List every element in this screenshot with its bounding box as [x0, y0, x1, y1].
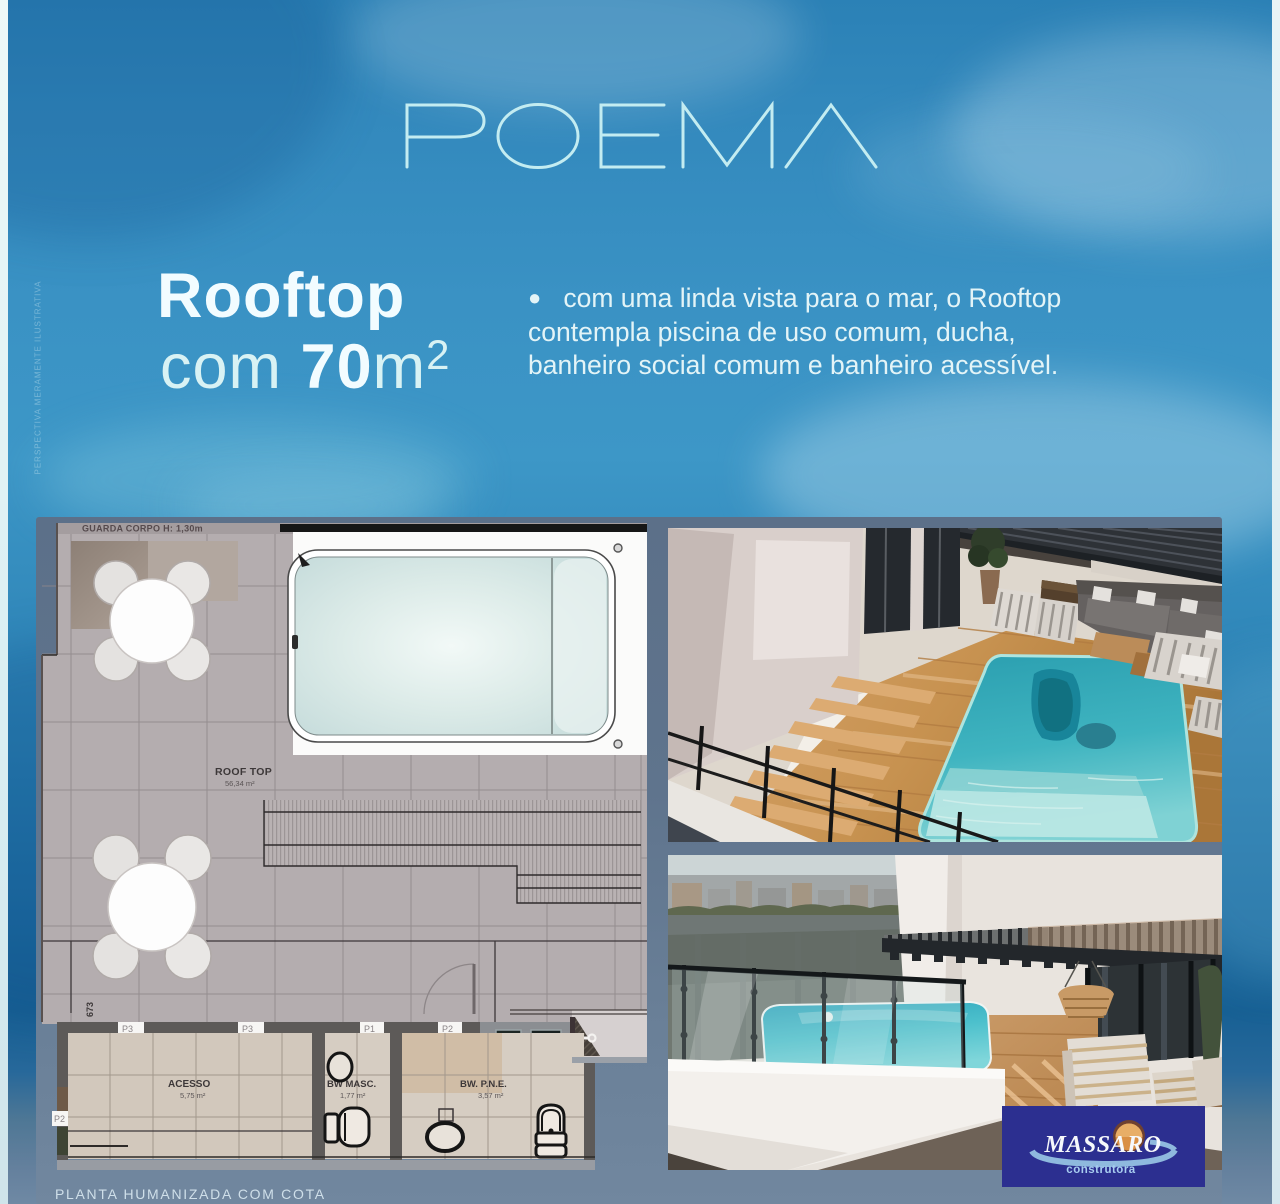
svg-text:1,77 m²: 1,77 m² — [340, 1091, 366, 1100]
svg-text:MASSARO: MASSARO — [1044, 1132, 1162, 1158]
svg-text:5,75 m²: 5,75 m² — [180, 1091, 206, 1100]
svg-text:P3: P3 — [122, 1024, 133, 1034]
svg-text:P3: P3 — [242, 1024, 253, 1034]
svg-text:GUARDA CORPO H: 1,30m: GUARDA CORPO H: 1,30m — [82, 524, 203, 534]
svg-text:673: 673 — [85, 1002, 95, 1017]
svg-text:P1: P1 — [364, 1024, 375, 1034]
svg-text:P2: P2 — [442, 1024, 453, 1034]
svg-text:P2: P2 — [54, 1114, 65, 1124]
svg-text:3,57 m²: 3,57 m² — [478, 1091, 504, 1100]
svg-text:ACESSO: ACESSO — [168, 1079, 210, 1090]
svg-text:ROOF TOP: ROOF TOP — [215, 766, 272, 778]
svg-text:BW. P.N.E.: BW. P.N.E. — [460, 1079, 507, 1090]
svg-text:56,34 m²: 56,34 m² — [225, 779, 255, 788]
svg-text:construtora: construtora — [1066, 1164, 1136, 1176]
